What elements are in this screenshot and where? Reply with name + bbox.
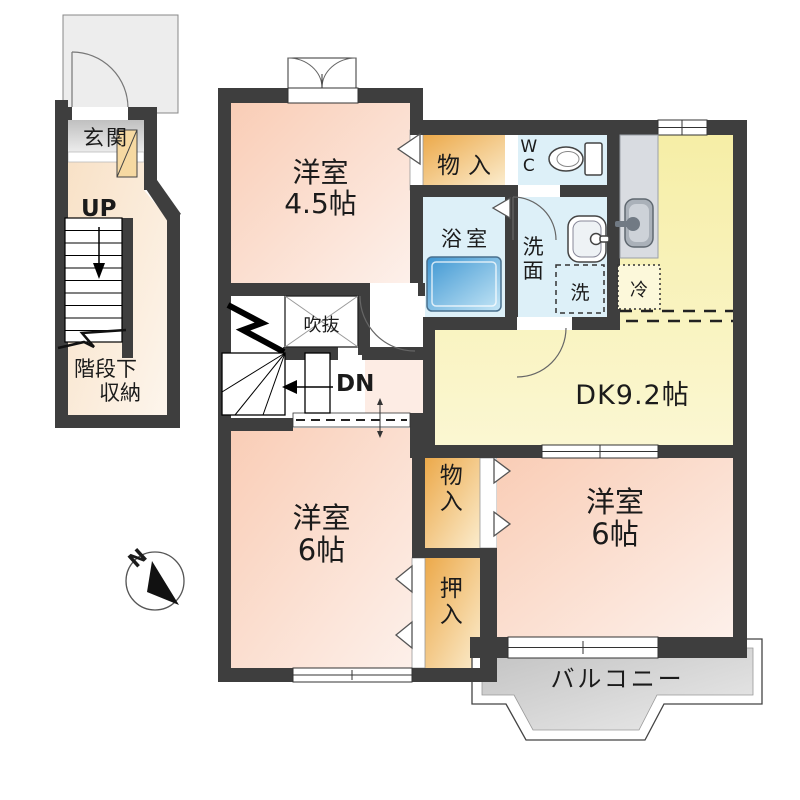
washroom-label: 洗面: [521, 236, 545, 283]
kitchen-top-window: [658, 120, 707, 135]
hall-room45-opening: [370, 283, 418, 296]
room6-right-name-label: 洋室: [497, 486, 733, 518]
closet-top-label: 物入: [423, 146, 505, 180]
room45-top-window: [288, 58, 358, 103]
sink-icon: [568, 216, 609, 262]
room6-left-size-label: 6帖: [231, 534, 412, 566]
oshiire-label: 押入: [438, 577, 464, 629]
stair-flight: [305, 353, 330, 413]
kitchen-counter: [615, 135, 658, 258]
hall-door-swing-area: [365, 296, 425, 351]
washer-label: 洗: [556, 278, 604, 305]
wc-label: WC: [519, 138, 539, 176]
room6-left-name-label: 洋室: [231, 502, 412, 534]
dk-label: DK9.2帖: [525, 373, 740, 412]
washroom-dk-opening: [517, 317, 572, 330]
balcony-label: バルコニー: [500, 659, 735, 694]
dk-room-window: [542, 445, 658, 458]
floor-plan-page: 玄関 UP 階段下 収納 洋室 4.5帖 物入 WC 浴室 洗面 洗 冷 DK9…: [0, 0, 800, 800]
void-label: 吹抜: [285, 311, 358, 337]
wc-door-opening: [518, 185, 560, 197]
oshiire-door: [412, 558, 425, 668]
room6-right-size-label: 6帖: [497, 518, 733, 550]
room45-size-label: 4.5帖: [231, 188, 410, 219]
under-stairs-storage-label-2: 収納: [99, 382, 141, 406]
bathroom-label: 浴室: [423, 223, 505, 253]
winder-stairs: [222, 353, 285, 415]
room6-left-bottom-window: [293, 668, 412, 682]
under-stairs-storage-label-1: 階段下: [74, 358, 141, 382]
up-label: UP: [81, 196, 117, 222]
entrance-porch: [63, 15, 178, 113]
dn-label: DN: [336, 371, 374, 397]
stairs-up: [58, 218, 133, 358]
entrance-door-opening: [72, 107, 128, 120]
entrance-label: 玄関: [68, 122, 144, 152]
bathtub-icon: [427, 257, 501, 311]
room45-name-label: 洋室: [231, 157, 410, 188]
fridge-label: 冷: [618, 276, 660, 302]
closet-mid-label: 物入: [438, 464, 464, 516]
room6-right-bottom-window: [508, 637, 658, 658]
